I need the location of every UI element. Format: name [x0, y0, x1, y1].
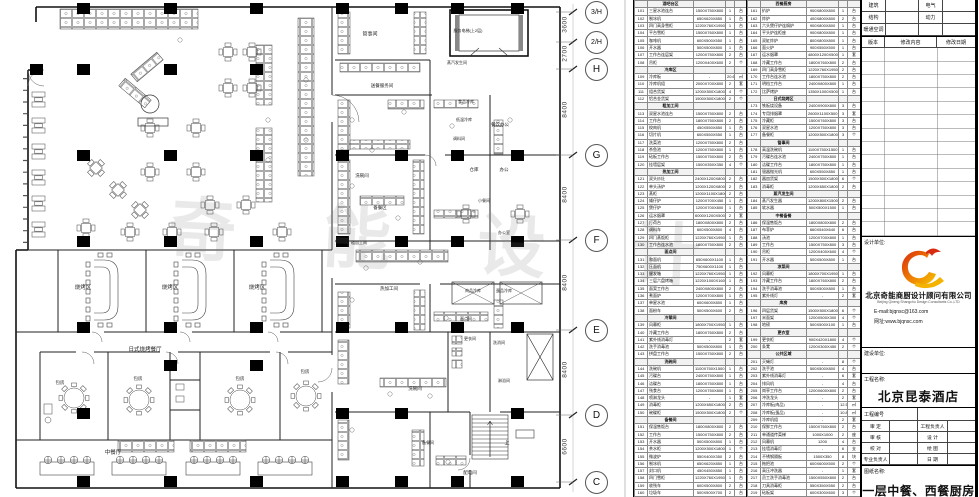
equipment-unit — [848, 351, 861, 358]
equipment-spec: 1200X700X450 — [694, 198, 726, 205]
equipment-spec: 1500X750X800 — [807, 241, 839, 248]
equipment-row: 101 三星水池连台 1500X750X800 1 台 — [635, 8, 748, 15]
equipment-row: 186 保温售饭台 1800X800X800 2 台 — [748, 219, 861, 226]
equipment-spec: 750X600X1100 — [694, 263, 726, 270]
equipment-no: 181 — [748, 168, 761, 175]
equipment-row: 备餐间 — [635, 416, 748, 423]
equipment-unit: 台 — [848, 154, 861, 161]
equipment-no: 202 — [748, 365, 761, 372]
equipment-name: 污碟台 — [648, 373, 694, 380]
equipment-spec: 1500X500X1800 — [694, 409, 726, 416]
equipment-row: 188 汤池 1200X700X800 1 台 — [748, 234, 861, 241]
stairs — [472, 415, 534, 459]
equipment-unit: 台 — [848, 183, 861, 190]
equipment-row: 187 布菲炉 660X540X640 6 台 — [748, 227, 861, 234]
equipment-qty: 4 — [839, 438, 848, 445]
equipment-row: 154 茶水柜 1200X500X1800 1 个 — [635, 446, 748, 453]
equipment-row: 185 软水器 500X500X1500 1 台 — [748, 205, 861, 212]
equipment-no: 145 — [635, 373, 648, 380]
equipment-name: 岗亭工作台 — [761, 387, 807, 394]
equipment-spec: 1200X500X1800 — [694, 446, 726, 453]
equipment-name: 挂墙消毒灯 — [761, 446, 807, 453]
company-name-en: Beijing Qineng Shangchu Design Consultan… — [865, 300, 972, 304]
equipment-name: 冷藏工作台 — [761, 59, 807, 66]
equipment-name: 粗加工间 — [648, 103, 694, 110]
equipment-qty — [726, 66, 735, 73]
equipment-no: 163 — [748, 22, 761, 29]
equipment-qty: 1 — [726, 380, 735, 387]
equipment-unit: 台 — [848, 88, 861, 95]
equipment-name: 中餐备餐 — [761, 212, 807, 219]
equipment-no: 114 — [635, 117, 648, 124]
equipment-no: 132 — [635, 263, 648, 270]
equipment-no: 209 — [748, 416, 761, 423]
equipment-spec: 1500X750X800 — [694, 154, 726, 161]
equipment-no: 144 — [635, 365, 648, 372]
equipment-row: 140 冷藏工作台 1800X760X800 2 台 — [635, 329, 748, 336]
equipment-row: 149 消毒柜 1200X650X1800 2 台 — [635, 402, 748, 409]
equipment-name: 碗碟柜 — [648, 409, 694, 416]
equipment-no: 101 — [635, 8, 648, 15]
equipment-name: 双星水池 — [761, 125, 807, 132]
equipment-unit — [848, 95, 861, 102]
equipment-name: 铝合金货架 — [648, 95, 694, 102]
equipment-qty: 1 — [726, 15, 735, 22]
equipment-row: 216 高压冲洗器 - 1 套 — [748, 468, 861, 475]
equipment-no: 156 — [635, 460, 648, 467]
equipment-name: 平台雪柜 — [648, 30, 694, 37]
equipment-spec: 600X600X800 — [694, 300, 726, 307]
grid-dimension: 8400 — [562, 263, 571, 303]
equipment-qty: 2 — [839, 292, 848, 299]
equipment-no: 218 — [748, 482, 761, 489]
equipment-spec: 1200X650X1800 — [807, 183, 839, 190]
equipment-spec — [694, 1, 726, 8]
equipment-row: 177 备餐柜 1200X500X1800 3 个 — [748, 132, 861, 139]
equipment-row: 162 炸炉 400X800X800 2 台 — [748, 15, 861, 22]
equipment-qty: 2 — [839, 59, 848, 66]
equipment-spec: 1200X500X1800 — [807, 132, 839, 139]
equipment-qty: 1 — [726, 146, 735, 153]
equipment-name: 面点间 — [648, 249, 694, 256]
equipment-row: 193 冷藏工作台 1800X760X800 2 台 — [748, 278, 861, 285]
equipment-name: 收残车 — [648, 482, 694, 489]
equipment-no: 139 — [635, 322, 648, 329]
equipment-no: 109 — [635, 73, 648, 80]
equipment-row: 131 和面机 650X600X1100 1 台 — [635, 256, 748, 263]
equipment-qty: 1 — [726, 44, 735, 51]
equipment-row: 192 风幕柜 1800X700X1950 1 台 — [748, 270, 861, 277]
equipment-row: 147 残食台 1200X750X800 1 台 — [635, 387, 748, 394]
equipment-no: 150 — [635, 409, 648, 416]
equipment-qty: 2 — [726, 139, 735, 146]
project-number-label: 工程编号 — [862, 408, 918, 420]
equipment-row: 205 岗亭工作台 1200X600X800 2 台 — [748, 387, 861, 394]
equipment-qty: 1 — [839, 168, 848, 175]
equipment-name: 平头炉连柜座 — [761, 30, 807, 37]
equipment-spec: 1200X1200X800 — [694, 183, 726, 190]
equipment-no: 196 — [748, 307, 761, 314]
equipment-spec: 2600X1100X500 — [807, 110, 839, 117]
equipment-spec: - — [807, 416, 839, 423]
equipment-name: 汤池 — [761, 234, 807, 241]
equipment-qty: 1 — [726, 198, 735, 205]
equipment-unit: 座 — [848, 431, 861, 438]
equipment-name: 煮面炉 — [648, 292, 694, 299]
equipment-name: 风幕柜 — [648, 322, 694, 329]
equipment-no: 122 — [635, 183, 648, 190]
equipment-row: 136 煮面炉 1200X700X800 1 台 — [635, 292, 748, 299]
equipment-row: 173 铁板烧设备 2400X900X800 3 台 — [748, 103, 861, 110]
equipment-spec: - — [694, 336, 726, 343]
equipment-unit: ㎡ — [848, 402, 861, 409]
equipment-name: 和面机 — [648, 256, 694, 263]
equipment-no: 143 — [635, 351, 648, 358]
equipment-unit: 台 — [848, 168, 861, 175]
equipment-qty — [839, 263, 848, 270]
equipment-qty: 4 — [839, 249, 848, 256]
equipment-qty: 1 — [726, 343, 735, 350]
equipment-qty: 2 — [839, 416, 848, 423]
equipment-qty: 2 — [839, 395, 848, 402]
equipment-row: 146 洁碟台 1800X750X800 1 台 — [635, 380, 748, 387]
equipment-no: 137 — [635, 300, 648, 307]
grid-bubble: G — [585, 144, 608, 167]
client-label: 建设单位: — [862, 348, 975, 357]
equipment-unit: 台 — [848, 73, 861, 80]
equipment-spec: 1800X750X800 — [807, 161, 839, 168]
equipment-spec: 1800X800X800 — [694, 219, 726, 226]
equipment-name: 保温售饭台 — [648, 424, 694, 431]
equipment-no: 108 — [635, 59, 648, 66]
equipment-spec: 500X500X800 — [807, 256, 839, 263]
equipment-spec: 500X500X800 — [807, 285, 839, 292]
discipline-table: 建筑 电气 — [862, 0, 975, 12]
equipment-row: 酒吧台区 — [635, 1, 748, 8]
equipment-row: 211 单通道传菜梯 1000X1000 2 座 — [748, 431, 861, 438]
equipment-name: 六头煲仔炉连焗炉 — [761, 22, 807, 29]
equipment-no: 201 — [748, 358, 761, 365]
equipment-no: 151 — [635, 424, 648, 431]
equipment-no: 193 — [748, 278, 761, 285]
equipment-unit: 台 — [848, 424, 861, 431]
equipment-qty: 3 — [839, 117, 848, 124]
equipment-row: 144 洗碗机 1100X750X1500 1 台 — [635, 365, 748, 372]
equipment-no: 166 — [748, 44, 761, 51]
equipment-no: 159 — [635, 482, 648, 489]
equipment-qty: 1 — [726, 395, 735, 402]
revision-rows — [862, 48, 975, 237]
equipment-row: 138 面粉车 500X500X600 2 台 — [635, 307, 748, 314]
equipment-row: 109 冷库板 - 20.6 ㎡ — [635, 73, 748, 80]
equipment-no: 107 — [635, 52, 648, 59]
equipment-row: 118 杀鱼池 1200X750X800 1 台 — [635, 146, 748, 153]
equipment-no: 140 — [635, 329, 648, 336]
equipment-qty: 1 — [726, 278, 735, 285]
equipment-row: 159 收残车 600X500X800 2 台 — [635, 482, 748, 489]
equipment-spec: - — [807, 402, 839, 409]
equipment-qty — [726, 314, 735, 321]
equipment-no: 138 — [635, 307, 648, 314]
equipment-qty: 2 — [726, 329, 735, 336]
equipment-no: 176 — [748, 125, 761, 132]
equipment-qty: 1 — [726, 365, 735, 372]
equipment-qty: 4 — [726, 161, 735, 168]
equipment-name: 热加工间 — [648, 168, 694, 175]
equipment-no: 188 — [748, 234, 761, 241]
equipment-spec: 1200X750X800 — [694, 52, 726, 59]
equipment-no: 123 — [635, 190, 648, 197]
equipment-row: 121 双头炒灶 2400X1200X800 2 台 — [635, 176, 748, 183]
equipment-qty: 2 — [726, 219, 735, 226]
equipment-no: 205 — [748, 387, 761, 394]
equipment-qty: 2 — [726, 285, 735, 292]
equipment-qty: 1 — [839, 205, 848, 212]
equipment-spec: 1500X500X1800 — [694, 95, 726, 102]
equipment-qty: 8 — [839, 358, 848, 365]
drawing-sheet: 奇 能 设 计 服务电梯(上2层) 管事间 蒸汽发生间 送餐服务间 食品冷库 低… — [0, 0, 979, 497]
equipment-unit: 台 — [848, 117, 861, 124]
equipment-no — [748, 300, 761, 307]
equipment-row: 117 洗菜池 1200X750X800 2 台 — [635, 139, 748, 146]
equipment-name: 开水器 — [648, 44, 694, 51]
equipment-spec: 1200X500X300 — [807, 314, 839, 321]
equipment-unit: 台 — [848, 285, 861, 292]
equipment-unit: 台 — [848, 81, 861, 88]
equipment-no: 217 — [748, 475, 761, 482]
equipment-qty: 2 — [726, 453, 735, 460]
equipment-spec: 450X550X850 — [694, 125, 726, 132]
equipment-unit: 台 — [848, 66, 861, 73]
equipment-qty: 4 — [726, 227, 735, 234]
equipment-row: 119 砧板工作台 1500X750X800 2 台 — [635, 154, 748, 161]
equipment-qty: 1 — [726, 37, 735, 44]
equipment-spec: 1200X600X800 — [807, 387, 839, 394]
equipment-spec: 1800X760X800 — [694, 329, 726, 336]
equipment-row: 191 开水器 500X500X800 1 台 — [748, 256, 861, 263]
equipment-spec — [694, 66, 726, 73]
equipment-row: 190 吊柜 1200X400X600 4 个 — [748, 249, 861, 256]
equipment-name: 洗手消毒池 — [648, 343, 694, 350]
equipment-row: 208 冷库板(蛋品) - 10.8 ㎡ — [748, 409, 861, 416]
equipment-unit: 套 — [848, 416, 861, 423]
equipment-qty — [726, 249, 735, 256]
equipment-spec: - — [807, 468, 839, 475]
equipment-spec: 1800X750X800 — [694, 117, 726, 124]
equipment-no: 120 — [635, 161, 648, 168]
equipment-qty: 2 — [726, 190, 735, 197]
equipment-spec — [694, 314, 726, 321]
equipment-name: 四门高身雪柜 — [761, 66, 807, 73]
equipment-row: 151 保温售饭台 1800X800X800 2 台 — [635, 424, 748, 431]
equipment-row: 179 污碟台连水池 2400X750X800 1 台 — [748, 154, 861, 161]
equipment-no: 121 — [635, 176, 648, 183]
equipment-no: 203 — [748, 373, 761, 380]
equipment-name: 不锈钢隔板 — [761, 453, 807, 460]
equipment-spec: 400X800X800 — [807, 15, 839, 22]
equipment-row: 169 四门高身雪柜 1220X760X1950 2 台 — [748, 66, 861, 73]
equipment-row: 212 风幕机 1200 4 台 — [748, 438, 861, 445]
equipment-no: 179 — [748, 154, 761, 161]
equipment-unit: 个 — [848, 489, 861, 496]
equipment-name: 组合货架 — [648, 88, 694, 95]
equipment-spec: 1200 — [807, 438, 839, 445]
equipment-spec: 1200X750X800 — [694, 146, 726, 153]
equipment-spec: 6000X1200X500 — [694, 212, 726, 219]
equipment-spec: 550X350X550 — [807, 482, 839, 489]
discipline-label: 电气 — [919, 0, 943, 11]
equipment-spec: 500X500X1500 — [807, 205, 839, 212]
equipment-row: 153 开水器 500X500X800 1 台 — [635, 438, 748, 445]
equipment-name: 洗碗间 — [648, 358, 694, 365]
equipment-qty: 1 — [726, 256, 735, 263]
equipment-no: 214 — [748, 453, 761, 460]
equipment-row: 113 双星水池连台 1500X750X800 2 台 — [635, 110, 748, 117]
equipment-spec — [694, 358, 726, 365]
equipment-no: 129 — [635, 234, 648, 241]
equipment-no: 146 — [635, 380, 648, 387]
equipment-name: 风幕机 — [761, 438, 807, 445]
equipment-row: 214 不锈钢隔板 1500X350 8 块 — [748, 453, 861, 460]
equipment-no: 187 — [748, 227, 761, 234]
grid-bubble: F — [585, 229, 608, 252]
equipment-name: 砧板架 — [761, 489, 807, 496]
equipment-name: 更衣室 — [761, 329, 807, 336]
equipment-row: 102 制冰机 650X620X850 1 台 — [635, 15, 748, 22]
equipment-name: 四门雪柜 — [648, 475, 694, 482]
equipment-qty: 1 — [839, 154, 848, 161]
equipment-spec: 500X500X800 — [694, 438, 726, 445]
company-email: E-mail:bjqnsc@163.com — [874, 309, 928, 315]
project-label: 工程名称: — [862, 374, 975, 383]
equipment-spec: 900X800X800 — [807, 30, 839, 37]
equipment-no: 206 — [748, 395, 761, 402]
equipment-unit: 台 — [848, 37, 861, 44]
equipment-no — [748, 351, 761, 358]
equipment-row: 180 洁碟工作台 1800X750X800 1 台 — [748, 161, 861, 168]
equipment-qty: 2 — [726, 489, 735, 496]
equipment-name: 封口机 — [648, 468, 694, 475]
equipment-qty — [839, 1, 848, 8]
equipment-spec: 660X540X640 — [807, 227, 839, 234]
equipment-spec: 600X500X800 — [694, 482, 726, 489]
equipment-row: 120 挂墙层架 1500X350X350 4 个 — [635, 161, 748, 168]
equipment-spec: 900X550X500 — [807, 44, 839, 51]
equipment-spec: 500X500X700 — [694, 489, 726, 496]
equipment-row: 174 专用排烟罩 2600X1100X500 3 套 — [748, 110, 861, 117]
equipment-qty — [726, 358, 735, 365]
equipment-name: 米面架 — [761, 314, 807, 321]
equipment-row: 184 蒸汽发生器 1200X800X1500 2 台 — [748, 198, 861, 205]
equipment-name: 吊柜 — [761, 249, 807, 256]
equipment-qty: 2 — [726, 154, 735, 161]
equipment-row: 198 地磅 500X500X100 1 台 — [748, 322, 861, 329]
equipment-qty: 1 — [726, 292, 735, 299]
equipment-name: 洁碟工作台 — [761, 161, 807, 168]
equipment-row: 164 平头炉连柜座 900X800X800 1 台 — [748, 30, 861, 37]
equipment-unit: 台 — [848, 103, 861, 110]
equipment-spec: 1200X750X800 — [694, 387, 726, 394]
equipment-row: 172 比萨烤炉 1350X1000X500 1 台 — [748, 88, 861, 95]
equipment-qty: 2 — [839, 482, 848, 489]
equipment-no — [635, 66, 648, 73]
grid-bubble: 3/H — [585, 1, 608, 24]
equipment-spec: 1800X700X1950 — [807, 270, 839, 277]
equipment-no: 165 — [748, 37, 761, 44]
equipment-row: 168 冷藏工作台 1800X760X800 2 台 — [748, 59, 861, 66]
equipment-spec: 1220X760X1950 — [807, 66, 839, 73]
equipment-row: 218 刀具消毒柜 550X350X550 2 台 — [748, 482, 861, 489]
equipment-no: 162 — [748, 15, 761, 22]
equipment-name: 地磅 — [761, 322, 807, 329]
equipment-name: 工作台连层架 — [648, 52, 694, 59]
equipment-name: 单通道传菜梯 — [761, 431, 807, 438]
equipment-spec — [694, 168, 726, 175]
equipment-spec — [694, 249, 726, 256]
equipment-no — [635, 103, 648, 110]
equipment-row: 204 排风机 - 4 台 — [748, 380, 861, 387]
signature-row: 校 对 绘 图 — [862, 443, 975, 454]
equipment-spec — [807, 95, 839, 102]
equipment-qty — [726, 103, 735, 110]
equipment-row: 104 平台雪柜 1500X760X800 1 台 — [635, 30, 748, 37]
equipment-name: 双头炒灶 — [648, 176, 694, 183]
equipment-name: 咖啡机 — [648, 37, 694, 44]
equipment-row: 175 冷藏柜 1500X760X800 3 台 — [748, 117, 861, 124]
equipment-row: 141 紫外线消毒灯 - 2 套 — [635, 336, 748, 343]
equipment-spec: 1500X500X1800 — [807, 307, 839, 314]
equipment-qty: 2 — [839, 475, 848, 482]
equipment-row: 124 矮仔炉 1200X700X450 1 台 — [635, 198, 748, 205]
equipment-name: 冷荤间 — [648, 314, 694, 321]
equipment-spec: 1200X750X800 — [807, 125, 839, 132]
equipment-no: 213 — [748, 446, 761, 453]
equipment-no: 128 — [635, 227, 648, 234]
equipment-qty: 1 — [726, 300, 735, 307]
equipment-row: 106 开水器 500X500X800 1 台 — [635, 44, 748, 51]
equipment-qty: 12.5 — [839, 402, 848, 409]
grid-bubble: D — [585, 404, 608, 427]
equipment-no — [635, 314, 648, 321]
equipment-spec: 500X500X800 — [807, 365, 839, 372]
equipment-name: 垃圾车 — [648, 489, 694, 496]
equipment-no: 117 — [635, 139, 648, 146]
equipment-row: 161 扒炉 900X800X800 1 台 — [748, 8, 861, 15]
equipment-spec: 1220X760X1950 — [694, 22, 726, 29]
equipment-row: 108 吊柜 1200X400X600 2 个 — [635, 59, 748, 66]
equipment-no: 186 — [748, 219, 761, 226]
equipment-unit: 台 — [848, 322, 861, 329]
equipment-row: 217 员工洗手消毒池 1500X550X800 2 台 — [748, 475, 861, 482]
equipment-no: 110 — [635, 81, 648, 88]
equipment-name: 冷藏柜 — [761, 117, 807, 124]
equipment-unit: 个 — [848, 132, 861, 139]
equipment-no — [748, 263, 761, 270]
equipment-spec: 1800X700X1950 — [694, 322, 726, 329]
equipment-spec: 1500X760X800 — [807, 117, 839, 124]
equipment-name: 制冰机 — [648, 15, 694, 22]
equipment-no: 111 — [635, 88, 648, 95]
equipment-row: 171 明档工作台 2400X800X800 1 台 — [748, 81, 861, 88]
equipment-spec: 500X500X600 — [694, 307, 726, 314]
equipment-row: 111 组合货架 1200X500X1800 4 个 — [635, 88, 748, 95]
equipment-unit: 台 — [848, 278, 861, 285]
equipment-unit: 台 — [848, 161, 861, 168]
equipment-name: 保温售饭台 — [761, 219, 807, 226]
equipment-no: 183 — [748, 183, 761, 190]
equipment-unit: 套 — [848, 292, 861, 299]
equipment-spec: 2400X800X800 — [694, 285, 726, 292]
